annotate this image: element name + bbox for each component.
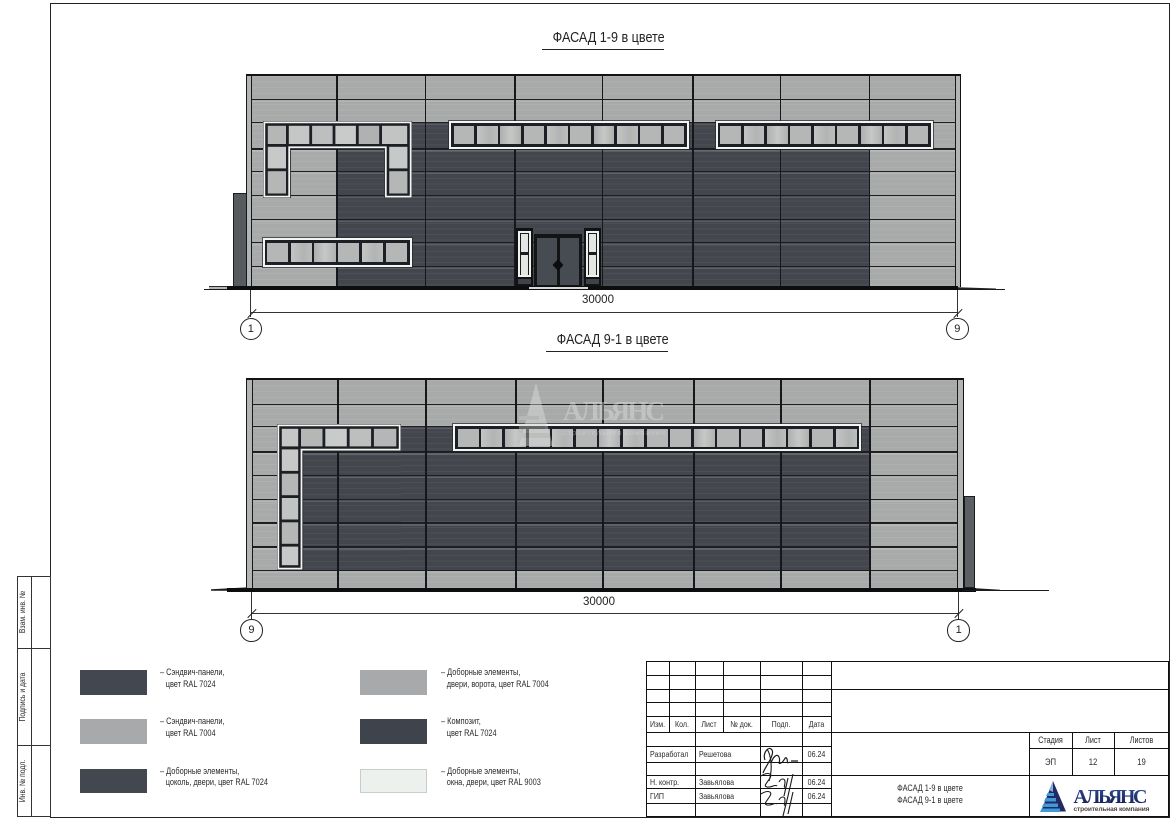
- svg-text:АЛЬЯНС: АЛЬЯНС: [563, 396, 665, 426]
- svg-text:строительная компания: строительная компания: [1074, 806, 1150, 813]
- svg-text:АЛЬЯНС: АЛЬЯНС: [1074, 786, 1148, 808]
- svg-text:строительная компания: строительная компания: [563, 428, 665, 437]
